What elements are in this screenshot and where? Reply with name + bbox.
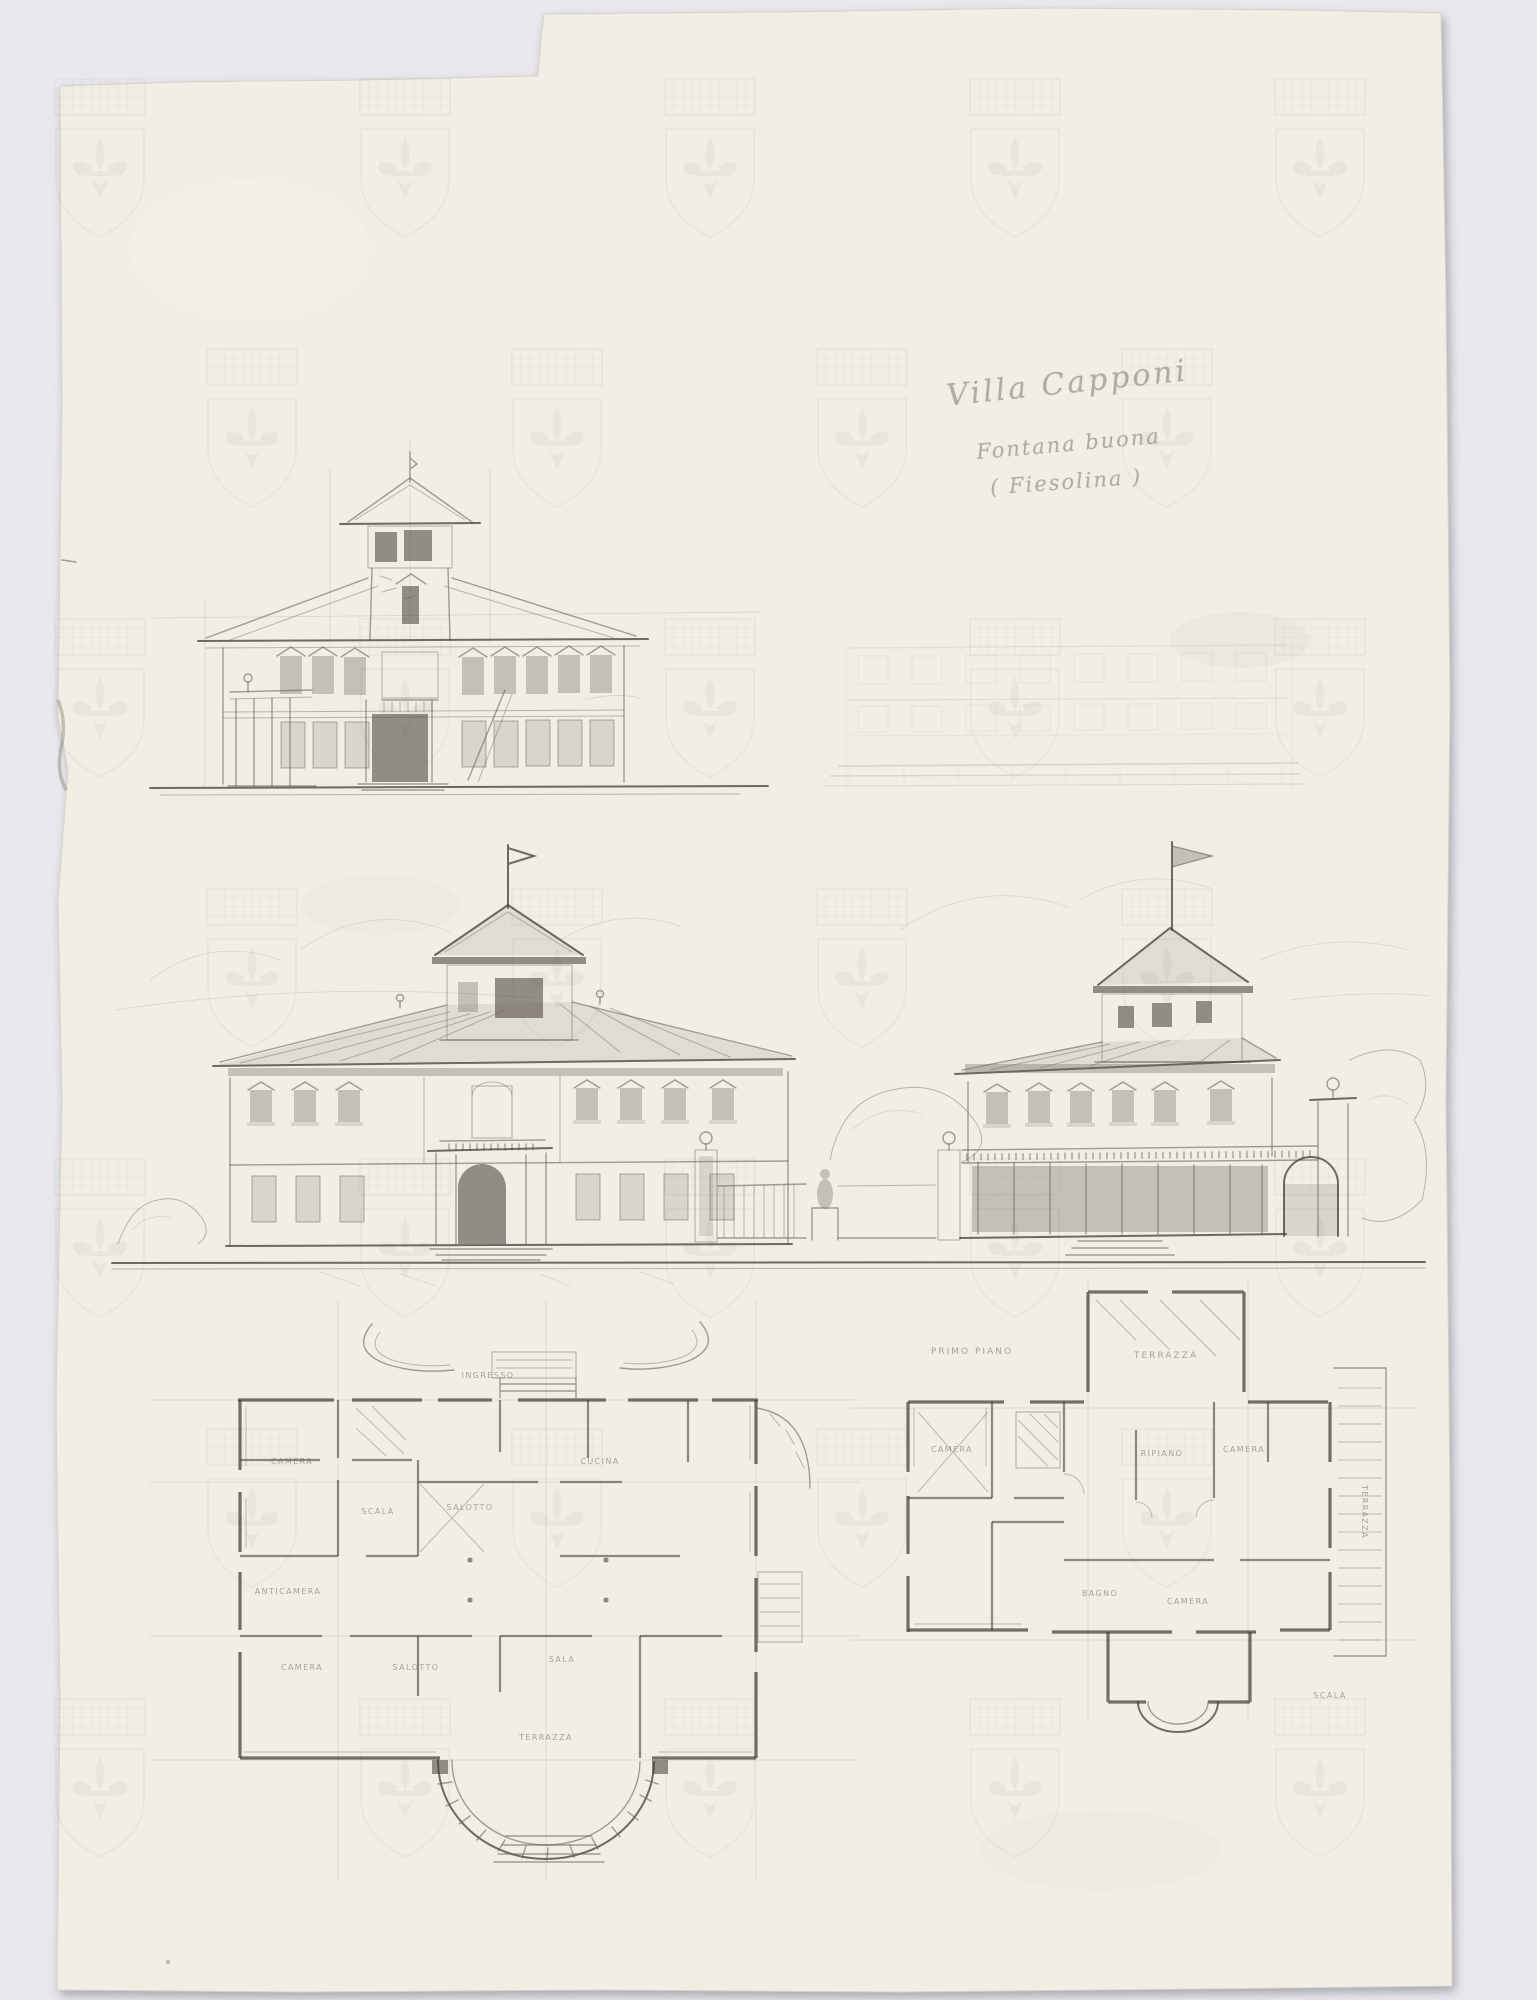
room-label: TERRAZZA [1360, 1484, 1369, 1539]
room-label: SCALA [361, 1507, 394, 1516]
room-label: CAMERA [281, 1663, 323, 1672]
room-label: SCALA [1313, 1691, 1346, 1700]
room-label: CUCINA [580, 1457, 619, 1466]
room-label: CAMERA [1167, 1597, 1209, 1606]
room-label: CAMERA [1223, 1445, 1265, 1454]
room-label: CAMERA [271, 1457, 313, 1466]
room-label: PRIMO PIANO [931, 1347, 1013, 1357]
room-label: SALOTTO [447, 1503, 494, 1512]
sheet-canvas: INGRESSOCAMERASCALASALOTTOCUCINAANTICAME… [0, 0, 1537, 2000]
room-label: CAMERA [931, 1445, 973, 1454]
room-label: TERRAZZA [1133, 1351, 1198, 1361]
room-label: RIPIANO [1141, 1449, 1184, 1458]
room-label: SALOTTO [393, 1663, 440, 1672]
room-label: ANTICAMERA [255, 1587, 321, 1596]
room-label: SALA [549, 1655, 575, 1664]
scanned-drawing-sheet: INGRESSOCAMERASCALASALOTTOCUCINAANTICAME… [0, 0, 1537, 2000]
room-label: BAGNO [1082, 1589, 1118, 1598]
room-label: TERRAZZA [518, 1733, 573, 1742]
room-label: INGRESSO [462, 1371, 515, 1380]
